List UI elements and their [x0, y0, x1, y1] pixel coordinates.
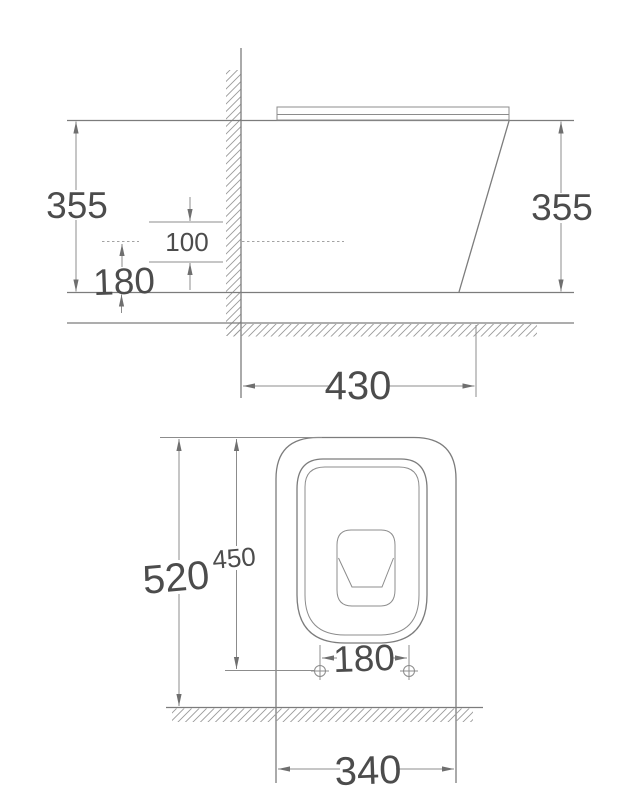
dim-label-180-plan: 180 — [332, 637, 395, 680]
seat-outer-ring — [297, 459, 427, 643]
dim-label-180-side: 180 — [92, 260, 155, 303]
dim-label-430: 430 — [325, 364, 392, 408]
technical-drawing-page: 355 355 100 180 430 5 — [0, 0, 640, 800]
footprint-outline — [276, 438, 456, 784]
ground-hatching — [227, 324, 537, 337]
toilet-dimension-drawing: 355 355 100 180 430 5 — [0, 0, 640, 800]
dim-label-340: 340 — [334, 748, 402, 794]
dim-label-450: 450 — [211, 541, 257, 575]
dim-label-355-right: 355 — [531, 187, 593, 228]
plan-wall-hatching — [172, 709, 473, 723]
bowl-outline — [337, 530, 395, 606]
seat-inner-ring — [305, 467, 419, 635]
dim-label-100: 100 — [165, 227, 208, 257]
fixing-hole-right — [400, 662, 418, 680]
wall-hatching — [226, 70, 241, 336]
dim-label-355-left: 355 — [46, 185, 108, 226]
plan-view: 520 450 180 340 — [141, 438, 483, 795]
bowl-sump-facets — [339, 558, 394, 587]
fixing-hole-left — [311, 662, 329, 680]
toilet-lid-outline — [277, 107, 509, 120]
toilet-front-slant-line — [459, 121, 509, 292]
side-view: 355 355 100 180 430 — [46, 48, 593, 408]
dim-label-520: 520 — [141, 553, 211, 603]
